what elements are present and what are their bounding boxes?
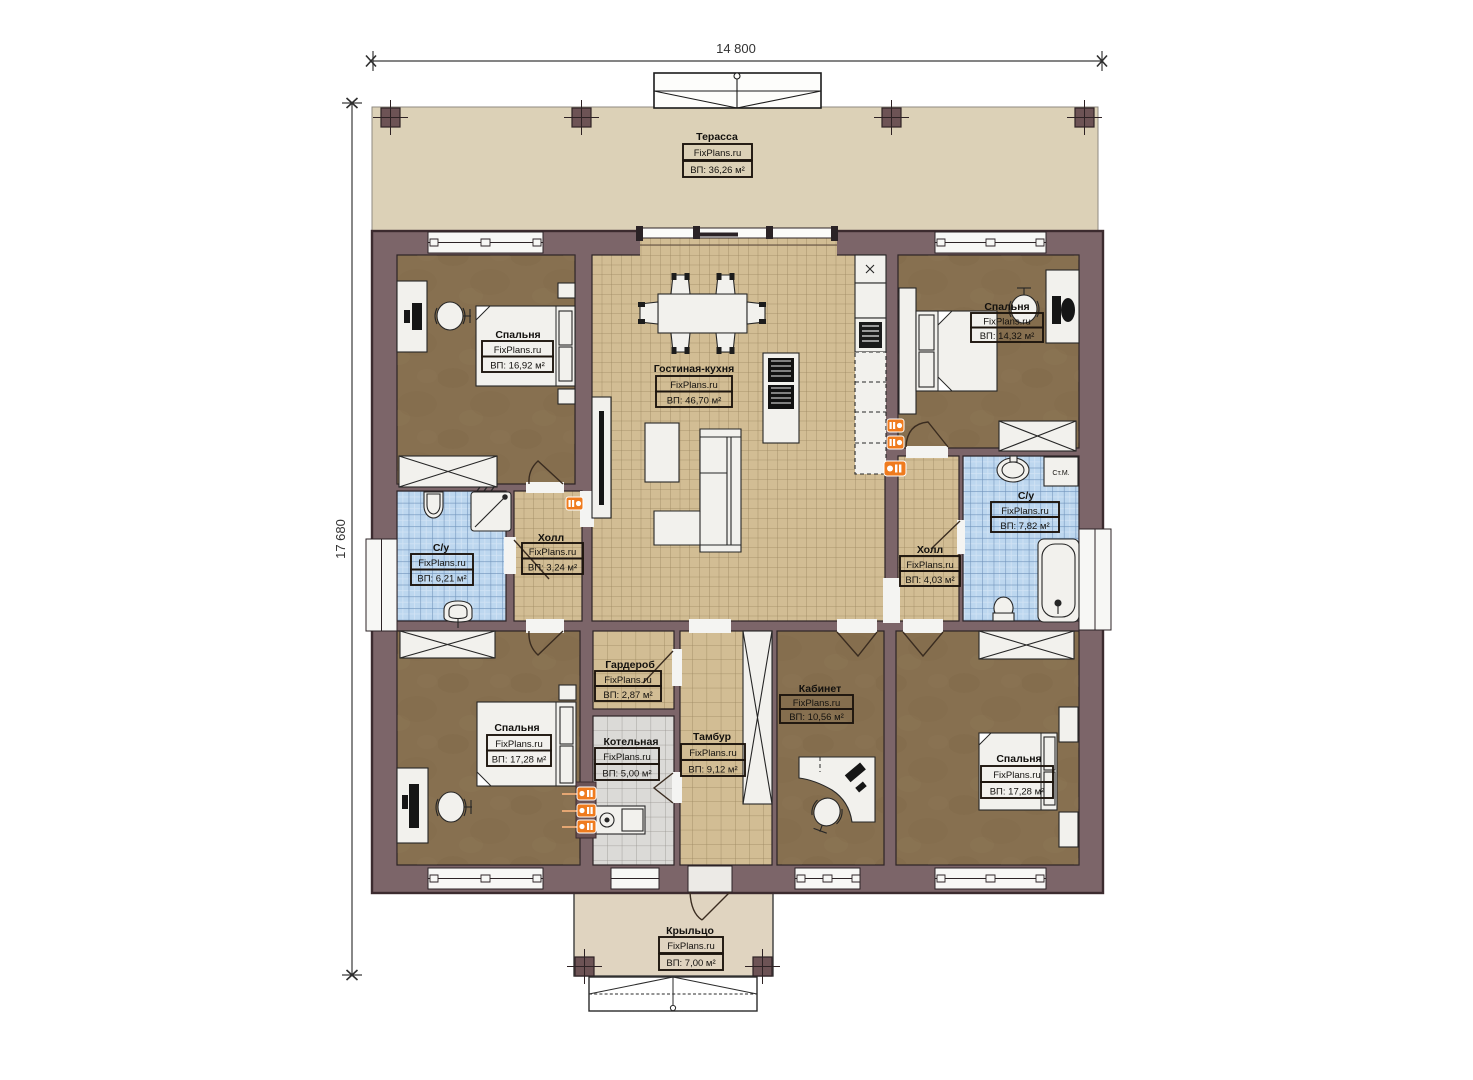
svg-text:ВП: 16,92 м²: ВП: 16,92 м² bbox=[490, 361, 545, 372]
svg-text:Холл: Холл bbox=[917, 544, 943, 556]
svg-text:Терасса: Терасса bbox=[696, 131, 738, 143]
svg-text:Спальня: Спальня bbox=[494, 722, 539, 734]
svg-text:ВП: 4,03 м²: ВП: 4,03 м² bbox=[905, 575, 954, 586]
svg-text:ВП: 7,82 м²: ВП: 7,82 м² bbox=[1000, 521, 1049, 532]
svg-text:FixPlans.ru: FixPlans.ru bbox=[689, 748, 737, 759]
svg-text:Крыльцо: Крыльцо bbox=[666, 925, 714, 937]
svg-text:Кабинет: Кабинет bbox=[799, 683, 842, 695]
svg-text:С/у: С/у bbox=[433, 542, 450, 554]
svg-text:ВП: 5,00 м²: ВП: 5,00 м² bbox=[602, 769, 651, 780]
svg-text:FixPlans.ru: FixPlans.ru bbox=[1001, 506, 1049, 517]
svg-text:Гардероб: Гардероб bbox=[605, 659, 655, 671]
svg-text:ВП: 3,24 м²: ВП: 3,24 м² bbox=[528, 563, 577, 574]
svg-text:ВП: 46,70 м²: ВП: 46,70 м² bbox=[667, 396, 722, 407]
svg-text:FixPlans.ru: FixPlans.ru bbox=[670, 380, 718, 391]
svg-text:ВП: 7,00 м²: ВП: 7,00 м² bbox=[666, 958, 715, 969]
svg-text:FixPlans.ru: FixPlans.ru bbox=[993, 770, 1041, 781]
svg-text:FixPlans.ru: FixPlans.ru bbox=[983, 317, 1031, 328]
svg-text:FixPlans.ru: FixPlans.ru bbox=[494, 345, 542, 356]
svg-text:ВП: 17,28 м²: ВП: 17,28 м² bbox=[990, 787, 1045, 798]
svg-text:FixPlans.ru: FixPlans.ru bbox=[604, 675, 652, 686]
svg-text:ВП: 10,56 м²: ВП: 10,56 м² bbox=[789, 712, 844, 723]
svg-text:FixPlans.ru: FixPlans.ru bbox=[418, 558, 466, 569]
svg-text:FixPlans.ru: FixPlans.ru bbox=[906, 560, 954, 571]
svg-text:Спальня: Спальня bbox=[495, 329, 540, 341]
svg-text:Спальня: Спальня bbox=[984, 301, 1029, 313]
svg-text:FixPlans.ru: FixPlans.ru bbox=[667, 941, 715, 952]
svg-text:FixPlans.ru: FixPlans.ru bbox=[694, 148, 742, 159]
svg-text:Гостиная-кухня: Гостиная-кухня bbox=[654, 363, 734, 375]
svg-text:С/у: С/у bbox=[1018, 490, 1035, 502]
svg-text:17 680: 17 680 bbox=[333, 519, 348, 559]
svg-text:ВП: 14,32 м²: ВП: 14,32 м² bbox=[980, 331, 1035, 342]
svg-text:14 800: 14 800 bbox=[716, 41, 756, 56]
svg-text:Спальня: Спальня bbox=[996, 753, 1041, 765]
svg-text:ВП: 2,87 м²: ВП: 2,87 м² bbox=[603, 690, 652, 701]
svg-text:ВП: 17,28 м²: ВП: 17,28 м² bbox=[492, 755, 547, 766]
svg-text:ВП: 6,21 м²: ВП: 6,21 м² bbox=[417, 574, 466, 585]
svg-text:ВП: 9,12 м²: ВП: 9,12 м² bbox=[688, 765, 737, 776]
svg-text:FixPlans.ru: FixPlans.ru bbox=[529, 547, 577, 558]
svg-text:FixPlans.ru: FixPlans.ru bbox=[603, 752, 651, 763]
svg-text:Котельная: Котельная bbox=[604, 736, 659, 748]
svg-text:FixPlans.ru: FixPlans.ru bbox=[495, 739, 543, 750]
svg-text:FixPlans.ru: FixPlans.ru bbox=[793, 698, 841, 709]
svg-text:ВП: 36,26 м²: ВП: 36,26 м² bbox=[690, 165, 745, 176]
svg-text:Тамбур: Тамбур bbox=[693, 731, 731, 743]
svg-text:Ст.М.: Ст.М. bbox=[1052, 470, 1069, 477]
